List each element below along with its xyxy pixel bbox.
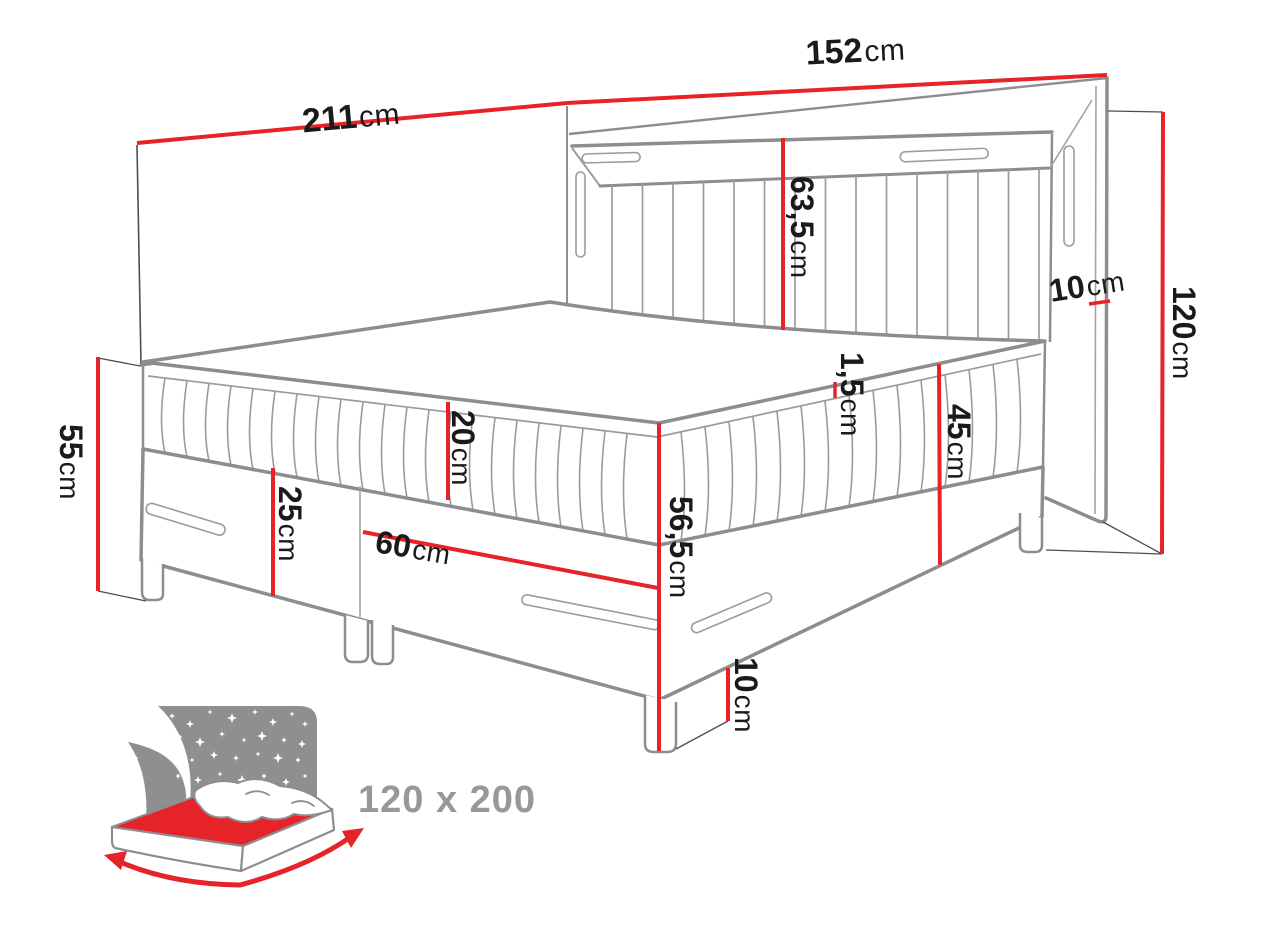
leg-middle-front: [345, 615, 368, 662]
led-slot-right-icon: [1064, 146, 1074, 246]
headboard: [569, 78, 1107, 522]
leg-middle-back: [372, 620, 393, 664]
led-slot-top-right-icon: [900, 148, 988, 162]
headboard-back-top-edge: [569, 78, 1107, 134]
leg-front-left: [142, 558, 163, 600]
leader-120-bottom-b: [1046, 550, 1162, 554]
leader-55-top: [98, 358, 140, 366]
leader-55-bottom: [98, 591, 146, 601]
dim-label-bed-height: 56,5cm: [663, 496, 699, 599]
mattress-top-surface: [143, 302, 1045, 423]
leg-right: [1020, 513, 1042, 552]
dim-label-headboard-panel-height: 63,5cm: [784, 176, 820, 279]
diagram-canvas: 211cm 152cm 63,5cm 10cm 120cm 55cm 20cm …: [0, 0, 1266, 949]
dim-label-headboard-height: 120cm: [1166, 286, 1202, 380]
icon-size-label: 120 x 200: [358, 779, 536, 821]
dim-line-45: [939, 364, 940, 565]
dim-line-120: [1162, 112, 1163, 554]
dim-line-152: [567, 75, 1107, 103]
mattress-right-corner-edge: [1043, 341, 1045, 467]
size-icon: 120 x 200: [104, 706, 536, 885]
dim-label-base-mattress-height: 45cm: [941, 404, 977, 480]
led-slot-top-left-icon: [582, 152, 640, 163]
dim-label-base-height: 25cm: [272, 486, 308, 562]
base-front-right-face: [659, 467, 1043, 700]
leader-10-bottom: [676, 721, 728, 749]
dim-label-topper-height: 1,5cm: [834, 352, 870, 437]
bed-dimension-diagram: 211cm 152cm 63,5cm 10cm 120cm 55cm 20cm …: [0, 0, 1266, 949]
dim-label-width-total: 211cm: [301, 94, 402, 141]
leader-120-bottom-a: [1103, 522, 1162, 554]
leader-120-top: [1108, 111, 1163, 112]
led-slot-left-icon: [576, 172, 585, 257]
headboard-panel-top-edge: [572, 132, 1052, 146]
icon-arrow-left-head: [104, 851, 127, 870]
dim-label-frame-margin: 10cm: [1046, 261, 1127, 308]
dim-label-headboard-width: 152cm: [805, 29, 907, 72]
wall-panel-left-edge: [137, 145, 141, 364]
dim-label-side-height: 55cm: [53, 424, 89, 500]
dim-label-mattress-height: 20cm: [445, 410, 481, 486]
dim-label-leg-height: 10cm: [728, 657, 764, 733]
headboard-slats: [612, 168, 1039, 341]
